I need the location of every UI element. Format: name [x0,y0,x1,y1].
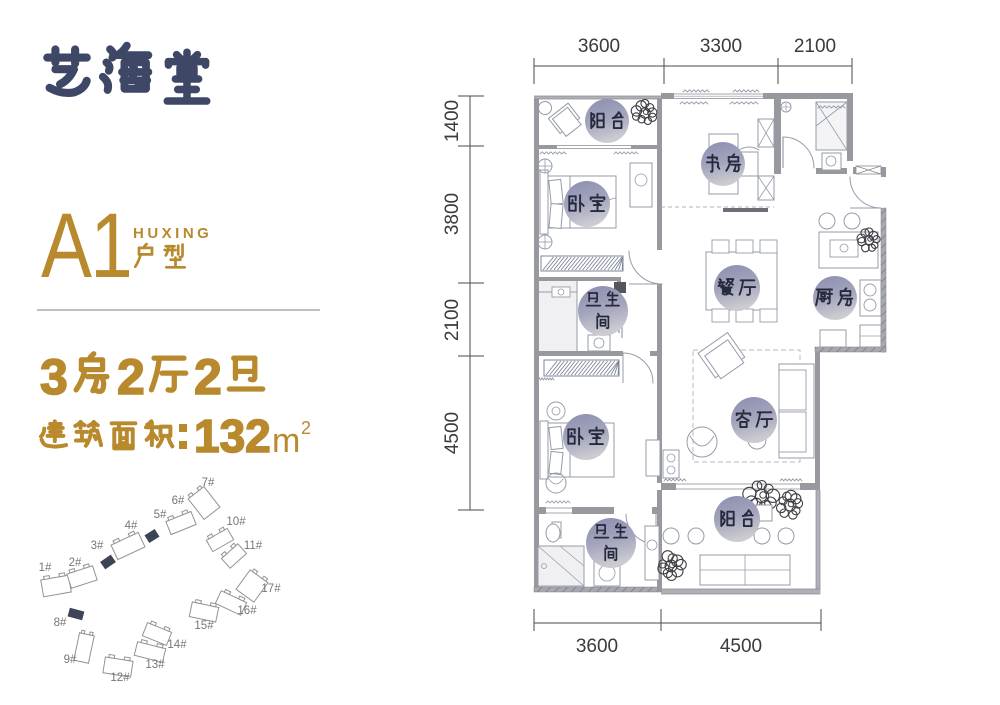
svg-text:17#: 17# [261,583,281,595]
svg-text:3600: 3600 [576,636,618,657]
svg-text:10#: 10# [226,516,246,528]
svg-text:2100: 2100 [442,299,463,341]
svg-text:A1: A1 [41,193,131,296]
svg-text:14#: 14# [167,639,187,651]
svg-text:16#: 16# [237,605,257,617]
svg-text:3600: 3600 [578,36,620,57]
svg-text:2: 2 [194,349,222,405]
svg-text:3: 3 [40,349,68,405]
svg-text:4500: 4500 [720,636,762,657]
svg-text:HUXING: HUXING [133,225,212,242]
svg-text:5#: 5# [154,509,167,521]
svg-text:6#: 6# [172,495,185,507]
svg-text:2: 2 [117,349,145,405]
svg-text:3300: 3300 [700,36,742,57]
svg-text:9#: 9# [64,654,77,666]
svg-text:1400: 1400 [442,100,463,142]
svg-text:12#: 12# [110,672,130,684]
svg-text:11#: 11# [244,540,263,552]
svg-text:1#: 1# [39,562,52,574]
svg-text:7#: 7# [202,477,215,489]
svg-text:2#: 2# [69,557,82,569]
svg-text:4#: 4# [125,520,138,532]
svg-text:3#: 3# [91,540,104,552]
svg-text:2: 2 [301,418,311,438]
svg-text:m: m [272,422,300,460]
svg-text:2100: 2100 [794,36,836,57]
svg-text:15#: 15# [194,620,214,632]
svg-text:13#: 13# [145,659,165,671]
svg-text:4500: 4500 [442,412,463,454]
svg-text:132: 132 [194,410,271,462]
svg-text:3800: 3800 [442,193,463,235]
svg-text:8#: 8# [54,617,67,629]
